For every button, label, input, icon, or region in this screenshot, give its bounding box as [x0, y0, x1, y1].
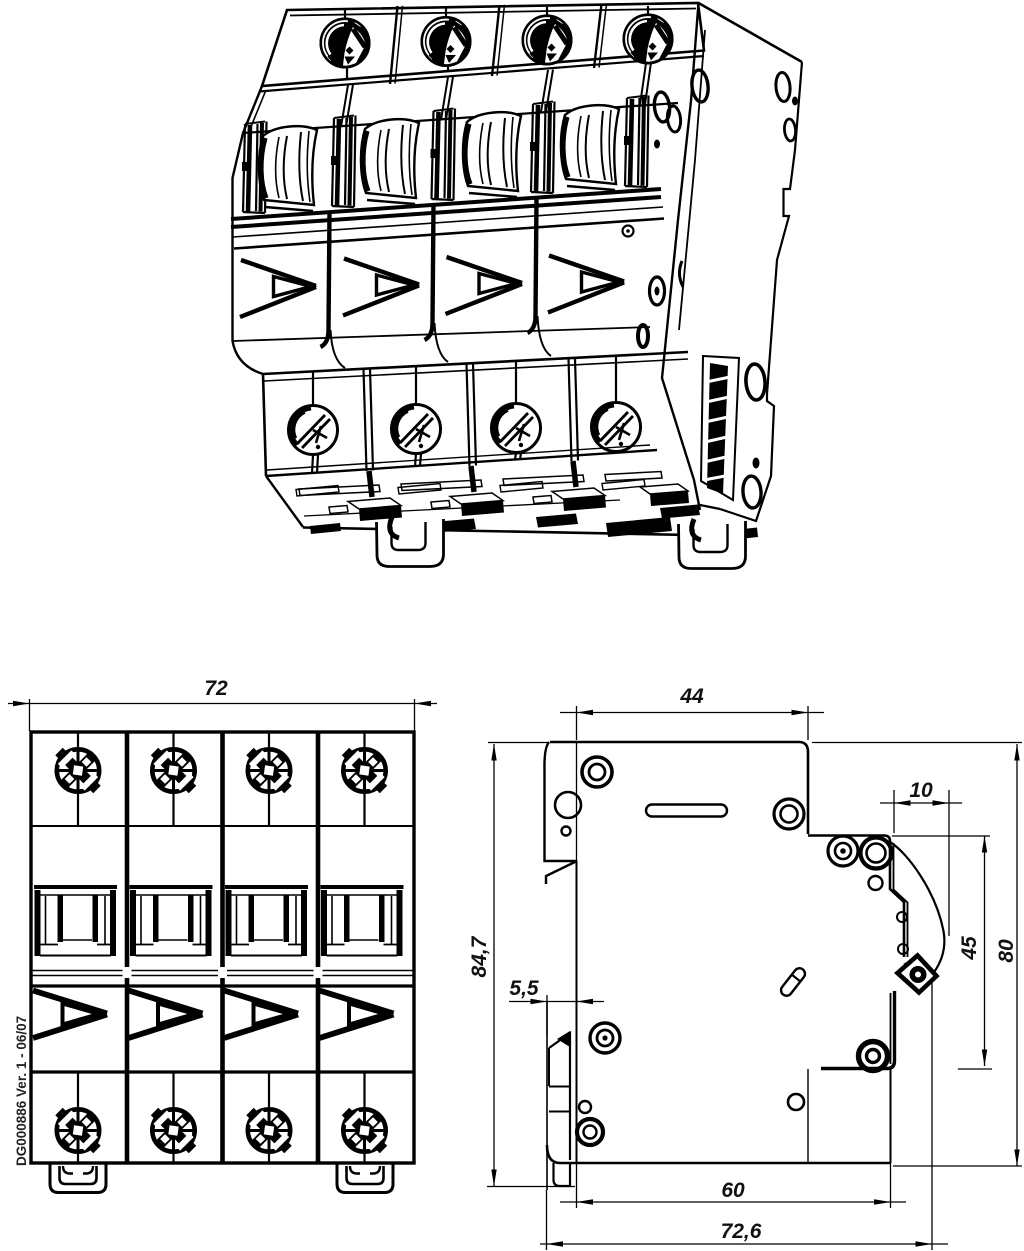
svg-text:DG000886 Ver. 1 - 06/07: DG000886 Ver. 1 - 06/07	[14, 1016, 29, 1166]
svg-text:45: 45	[958, 936, 981, 961]
svg-text:72: 72	[204, 677, 228, 700]
svg-text:80: 80	[995, 939, 1018, 963]
svg-text:44: 44	[679, 685, 704, 708]
svg-text:60: 60	[721, 1179, 745, 1202]
svg-text:72,6: 72,6	[721, 1220, 762, 1243]
svg-text:10: 10	[909, 779, 933, 802]
svg-text:5,5: 5,5	[509, 977, 539, 1000]
svg-text:84,7: 84,7	[468, 935, 491, 977]
